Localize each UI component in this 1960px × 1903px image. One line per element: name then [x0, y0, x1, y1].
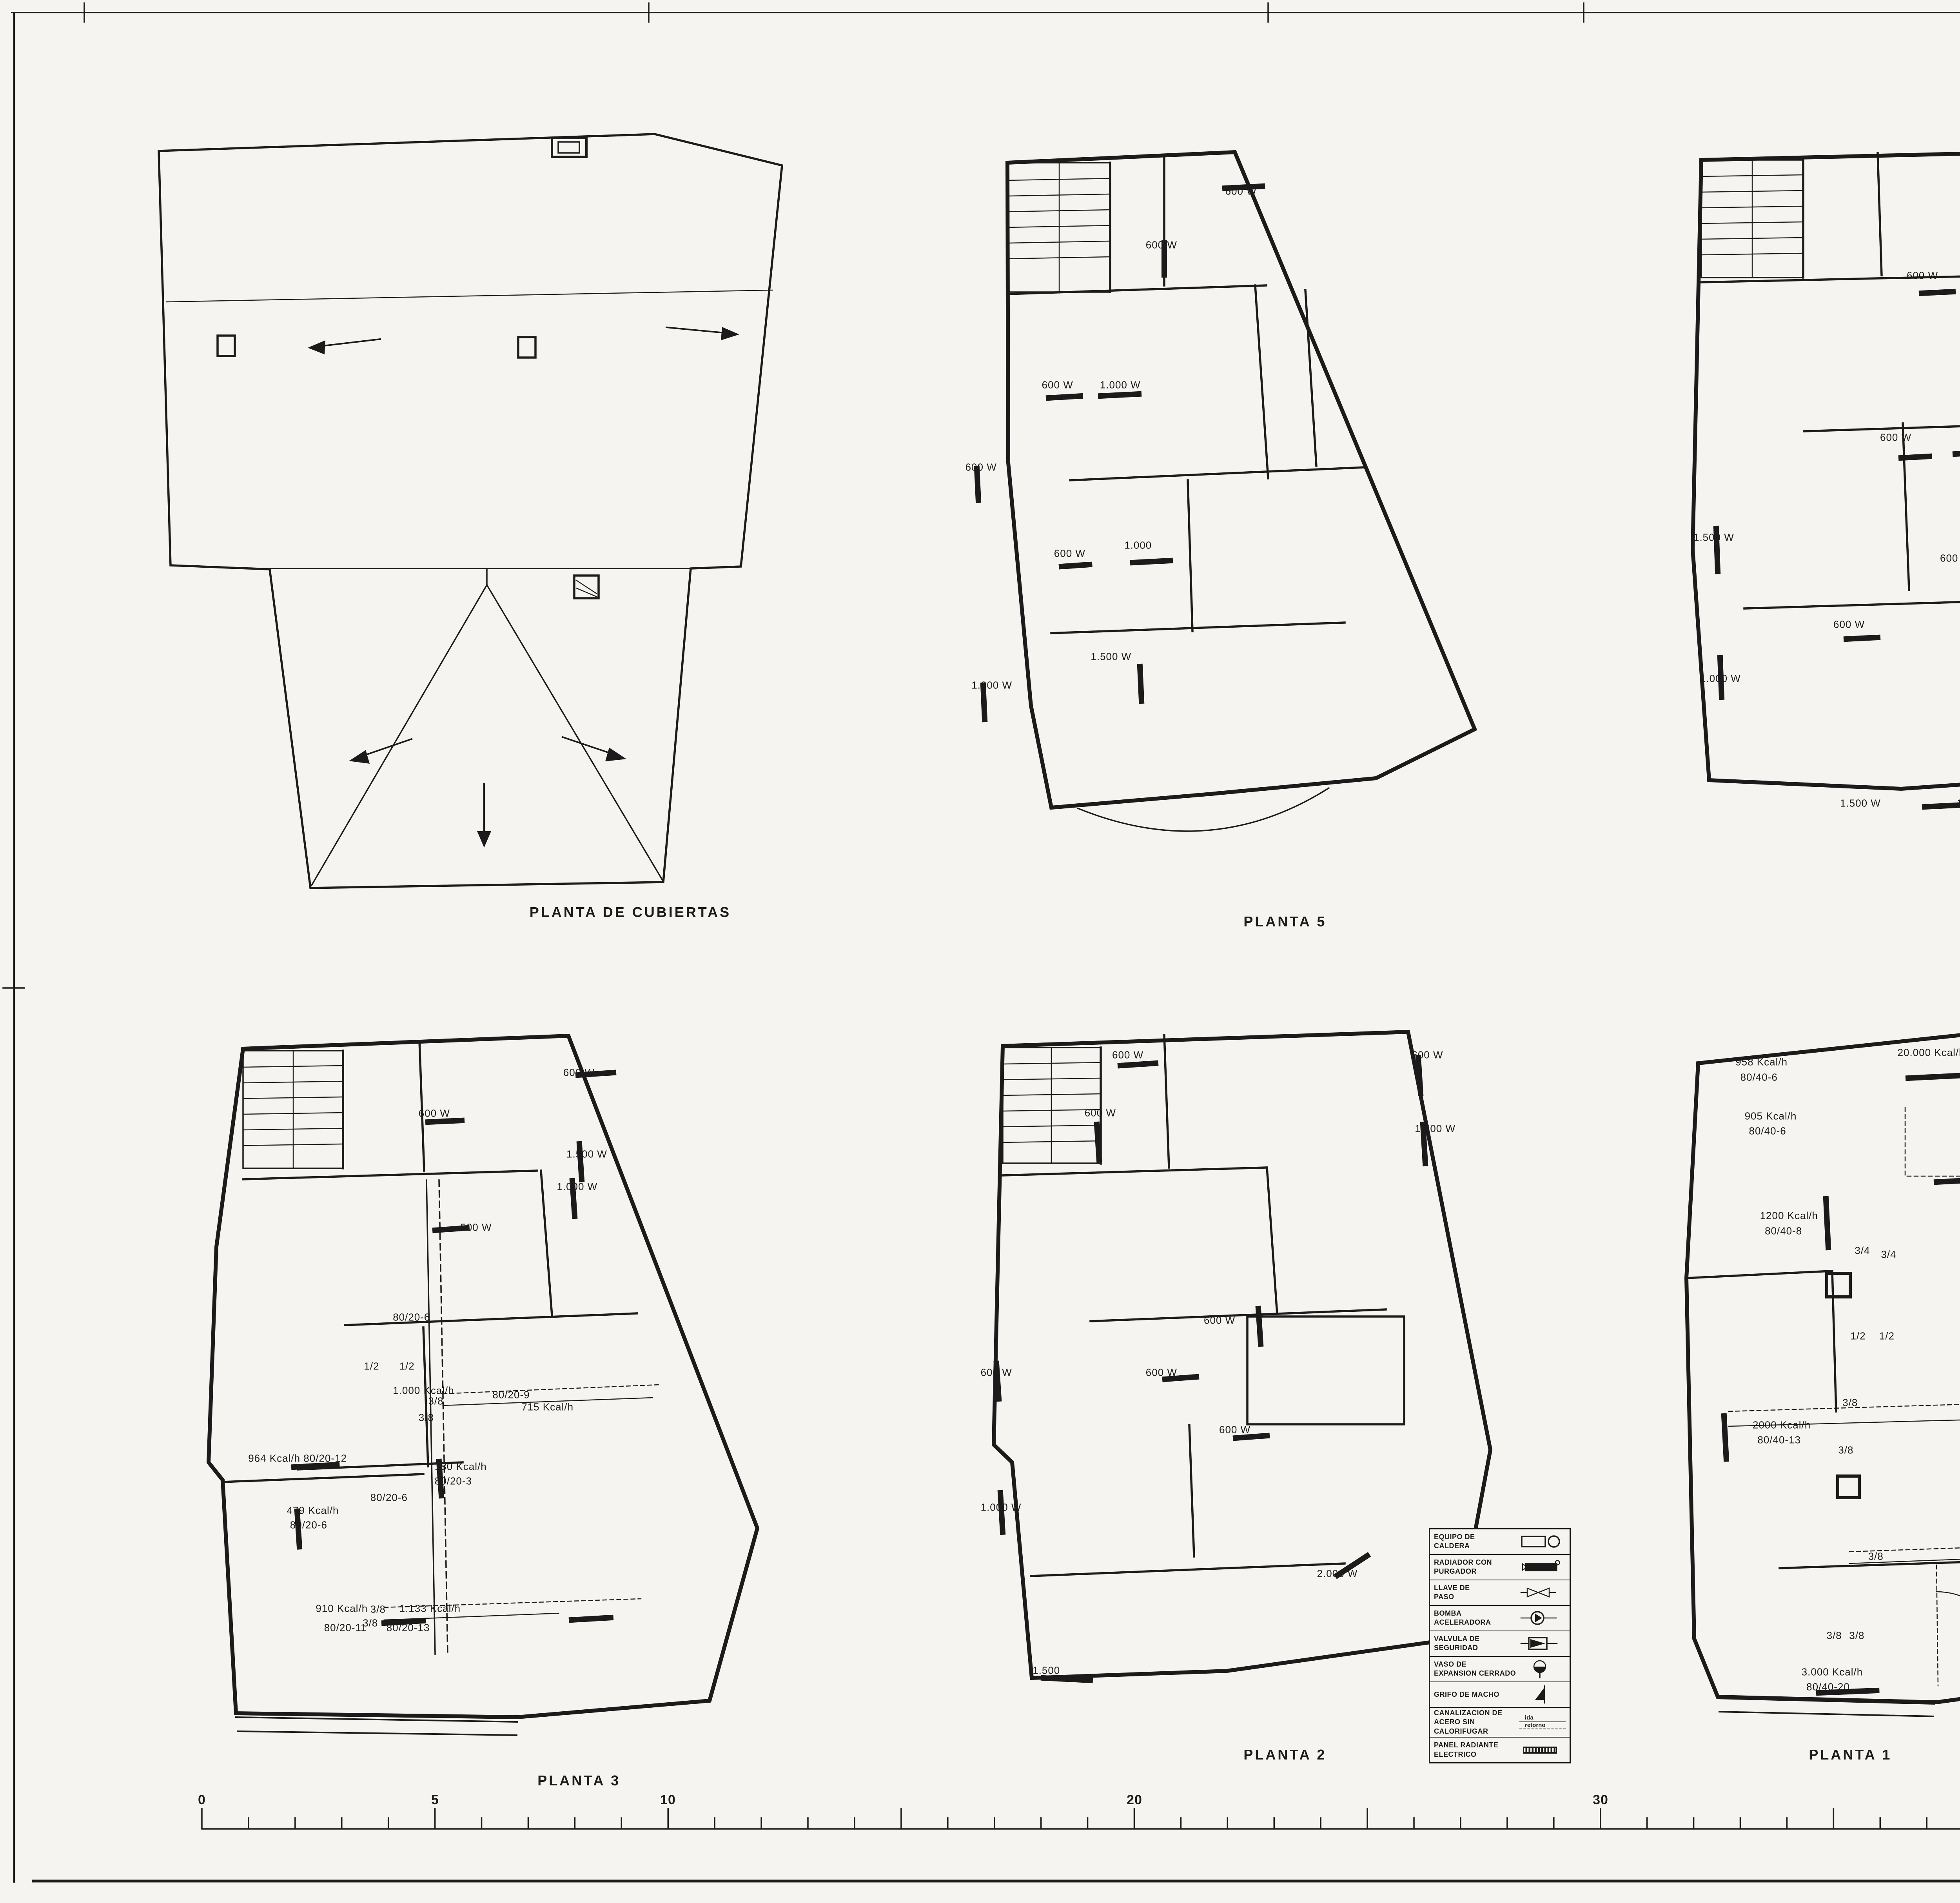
annotation-label: 910 Kcal/h: [316, 1602, 368, 1614]
plan-planta4: PLANTA 4 600 W600 W1.500 W600 W500 W1.00…: [1627, 118, 1960, 949]
scale-bar-label: 30: [1593, 1792, 1608, 1808]
annotation-label: 600 W: [419, 1108, 450, 1120]
annotation-label: 905 Kcal/h: [1745, 1110, 1797, 1122]
annotation-label: 600 W: [965, 461, 997, 473]
legend-row: PANEL RADIANTEELECTRICO: [1430, 1737, 1570, 1762]
annotation-label: 600 W: [1204, 1314, 1235, 1326]
annotation-label: 3/8: [1868, 1550, 1884, 1562]
annotation-label: 20.000 Kcal/h: [1898, 1047, 1960, 1059]
annotation-label: 600 W: [1833, 619, 1865, 631]
annotation-label: 80/20-11: [324, 1622, 367, 1634]
roof-hatch-box: [218, 336, 599, 598]
legend-label: VALVULA DESEGURIDAD: [1434, 1634, 1519, 1653]
legend-label: RADIADOR CONPURGADOR: [1434, 1558, 1519, 1576]
floor-plan-drawing: [165, 1011, 808, 1827]
annotation-label: 500 W: [460, 1222, 492, 1234]
electric-panel-icon: [1519, 1740, 1566, 1760]
annotation-label: 80/40-6: [1740, 1071, 1778, 1083]
annotation-label: 958 Kcal/h: [1735, 1056, 1788, 1068]
roof-plan-drawing: [129, 118, 819, 941]
legend-label: GRIFO DE MACHO: [1434, 1690, 1519, 1699]
floor-plan-drawing: [1627, 118, 1960, 949]
legend-box: EQUIPO DECALDERA RADIADOR CONPURGADOR LL…: [1429, 1528, 1571, 1763]
annotation-label: 600 W: [1054, 548, 1085, 560]
annotation-label: 80/40-13: [1757, 1434, 1801, 1446]
annotation-label: 1.000 W: [557, 1181, 597, 1193]
annotation-label: 1/2: [364, 1360, 379, 1372]
annotation-label: 80/20-6: [290, 1519, 327, 1531]
annotation-label: 80/40-6: [1749, 1125, 1786, 1137]
annotation-label: 3/8: [1842, 1397, 1858, 1409]
plan-planta3: PLANTA 3 600 W600 W1.500 W1.000 W500 W80…: [165, 1011, 808, 1827]
annotation-label: 600 W: [563, 1067, 595, 1079]
stair: [1003, 1048, 1101, 1163]
roof-slope-arrows: [308, 327, 739, 848]
annotation-label: 80/20-3: [435, 1475, 472, 1487]
annotation-label: 1.000 W: [1700, 673, 1741, 685]
legend-label: LLAVE DEPASO: [1434, 1583, 1519, 1602]
annotation-label: 600 W: [1225, 185, 1257, 198]
annotation-label: 479 Kcal/h: [287, 1504, 339, 1516]
plan-title: PLANTA 3: [537, 1772, 621, 1789]
scale-bar-label: 0: [198, 1792, 206, 1808]
stair: [243, 1051, 343, 1168]
chimney: [552, 138, 586, 157]
annotation-label: 600 W: [1042, 379, 1073, 391]
annotation-label: 1.500 W: [566, 1148, 607, 1160]
legend-row: VASO DEEXPANSION CERRADO: [1430, 1656, 1570, 1681]
annotation-label: 3/8: [428, 1395, 443, 1407]
annotation-label: 3.000 Kcal/h: [1802, 1666, 1863, 1678]
annotation-label: 1.500 W: [1693, 531, 1734, 543]
drawing-sheet: PLANTA DE CUBIERTAS PLANTA 5 600 W600 W6…: [0, 0, 1960, 1903]
pump-icon: [1519, 1608, 1566, 1628]
legend-row: BOMBAACELERADORA: [1430, 1605, 1570, 1631]
scale-bar-label: 10: [660, 1792, 676, 1808]
annotation-label: 1.000 W: [971, 679, 1012, 692]
legend-row: LLAVE DEPASO: [1430, 1580, 1570, 1605]
annotation-label: 964 Kcal/h 80/20-12: [248, 1452, 347, 1464]
annotation-label: 600 W: [1219, 1424, 1250, 1436]
annotation-label: 3/8: [1838, 1444, 1853, 1456]
annotation-label: 1.500 W: [1415, 1122, 1455, 1135]
annotation-label: 600 W: [1146, 1367, 1177, 1379]
expansion-vessel-icon: [1519, 1659, 1566, 1679]
legend-row: GRIFO DE MACHO: [1430, 1681, 1570, 1707]
annotation-label: 1.000 Kcal/h: [393, 1385, 454, 1397]
annotation-label: 80/40-20: [1806, 1681, 1850, 1693]
annotation-label: 600 W: [1085, 1107, 1116, 1119]
plan-planta1: PLANTA 1 958 Kcal/h80/40-620.000 Kcal/h9…: [1662, 1004, 1960, 1796]
legend-label: VASO DEEXPANSION CERRADO: [1434, 1660, 1519, 1678]
annotation-label: 3/8: [1849, 1629, 1864, 1642]
annotation-label: 600 W: [1880, 432, 1911, 444]
steel-pipe-icon: ida retorno: [1519, 1715, 1566, 1729]
legend-label: BOMBAACELERADORA: [1434, 1609, 1519, 1627]
annotation-label: 180 Kcal/h: [435, 1460, 487, 1473]
annotation-label: 1.000 W: [1100, 379, 1141, 391]
annotation-label: 600 W: [1412, 1049, 1443, 1061]
annotation-label: 3/4: [1881, 1249, 1896, 1261]
annotation-label: 600 W: [981, 1367, 1012, 1379]
retorno-line-label: retorno: [1519, 1722, 1566, 1730]
legend-label: PANEL RADIANTEELECTRICO: [1434, 1741, 1519, 1759]
annotation-label: 600 W: [1112, 1049, 1143, 1061]
plan-title: PLANTA 2: [1243, 1747, 1327, 1763]
legend-row: EQUIPO DECALDERA: [1430, 1529, 1570, 1554]
annotation-label: 600 W: [1907, 269, 1938, 281]
annotation-label: 1.500 W: [1957, 797, 1960, 810]
radiator-symbols: [977, 186, 1262, 719]
annotation-label: 1/2: [1850, 1330, 1866, 1342]
ida-line-label: ida: [1519, 1715, 1566, 1722]
annotation-label: 1.500 W: [1840, 797, 1881, 810]
annotation-label: 1.000 W: [981, 1501, 1022, 1513]
radiator-symbols: [996, 1058, 1425, 1680]
scale-bar-label: 20: [1127, 1792, 1142, 1808]
riser-box-symbols: [1827, 1255, 1960, 1498]
legend-label: CANALIZACION DEACERO SINCALORIFUGAR: [1434, 1709, 1519, 1736]
annotation-label: 1.500: [1033, 1664, 1060, 1676]
annotation-label: 80/20-6: [370, 1491, 408, 1504]
legend-row: CANALIZACION DEACERO SINCALORIFUGAR ida …: [1430, 1707, 1570, 1737]
annotation-label: 80/20-9: [492, 1389, 530, 1401]
annotation-label: 600 W: [1940, 552, 1960, 564]
plan-title: PLANTA DE CUBIERTAS: [530, 904, 731, 921]
annotation-label: 1200 Kcal/h: [1760, 1210, 1818, 1222]
radiator-icon: [1519, 1557, 1566, 1577]
scale-bar-label: 5: [431, 1792, 439, 1808]
annotation-label: 3/8: [1827, 1629, 1842, 1642]
annotation-label: 3/4: [1855, 1245, 1870, 1257]
annotation-label: 2.000 W: [1317, 1568, 1358, 1580]
legend-row: VALVULA DESEGURIDAD: [1430, 1631, 1570, 1656]
stair: [1008, 163, 1110, 292]
shutoff-valve-icon: [1519, 1582, 1566, 1603]
annotation-label: 1.000: [1124, 539, 1152, 552]
plan-cubiertas: PLANTA DE CUBIERTAS: [129, 118, 819, 941]
floor-plan-drawing: [913, 125, 1525, 949]
plug-cock-icon: [1519, 1684, 1566, 1705]
annotation-label: 2000 Kcal/h: [1753, 1419, 1811, 1431]
annotation-label: 80/20-6: [393, 1311, 430, 1324]
annotation-label: 1/2: [399, 1360, 415, 1372]
annotation-label: 80/20-13: [387, 1622, 430, 1634]
annotation-label: 1.500 W: [1091, 650, 1131, 663]
safety-valve-icon: [1519, 1633, 1566, 1654]
annotation-label: 715 Kcal/h: [521, 1401, 573, 1413]
annotation-label: 600 W: [1146, 239, 1177, 251]
annotation-label: 3/8: [370, 1603, 386, 1615]
plan-planta5: PLANTA 5 600 W600 W600 W1.000 W600 W600 …: [913, 125, 1525, 949]
annotation-label: 1.133 Kcal/h: [399, 1602, 461, 1614]
radiator-symbols: [1716, 214, 1960, 807]
annotation-label: 80/40-8: [1765, 1225, 1802, 1237]
scale-bar-labels: 0510203040 m: [0, 1792, 1960, 1816]
radiator-symbols: [1724, 1075, 1960, 1693]
boiler-equipment-icon: [1519, 1531, 1566, 1552]
legend-label: EQUIPO DECALDERA: [1434, 1533, 1519, 1551]
plan-title: PLANTA 1: [1809, 1747, 1892, 1763]
annotation-label: 1/2: [1879, 1330, 1895, 1342]
legend-row: RADIADOR CONPURGADOR: [1430, 1554, 1570, 1580]
stair: [1701, 160, 1803, 278]
annotation-label: 3/8: [419, 1411, 434, 1424]
plan-title: PLANTA 5: [1243, 913, 1327, 930]
